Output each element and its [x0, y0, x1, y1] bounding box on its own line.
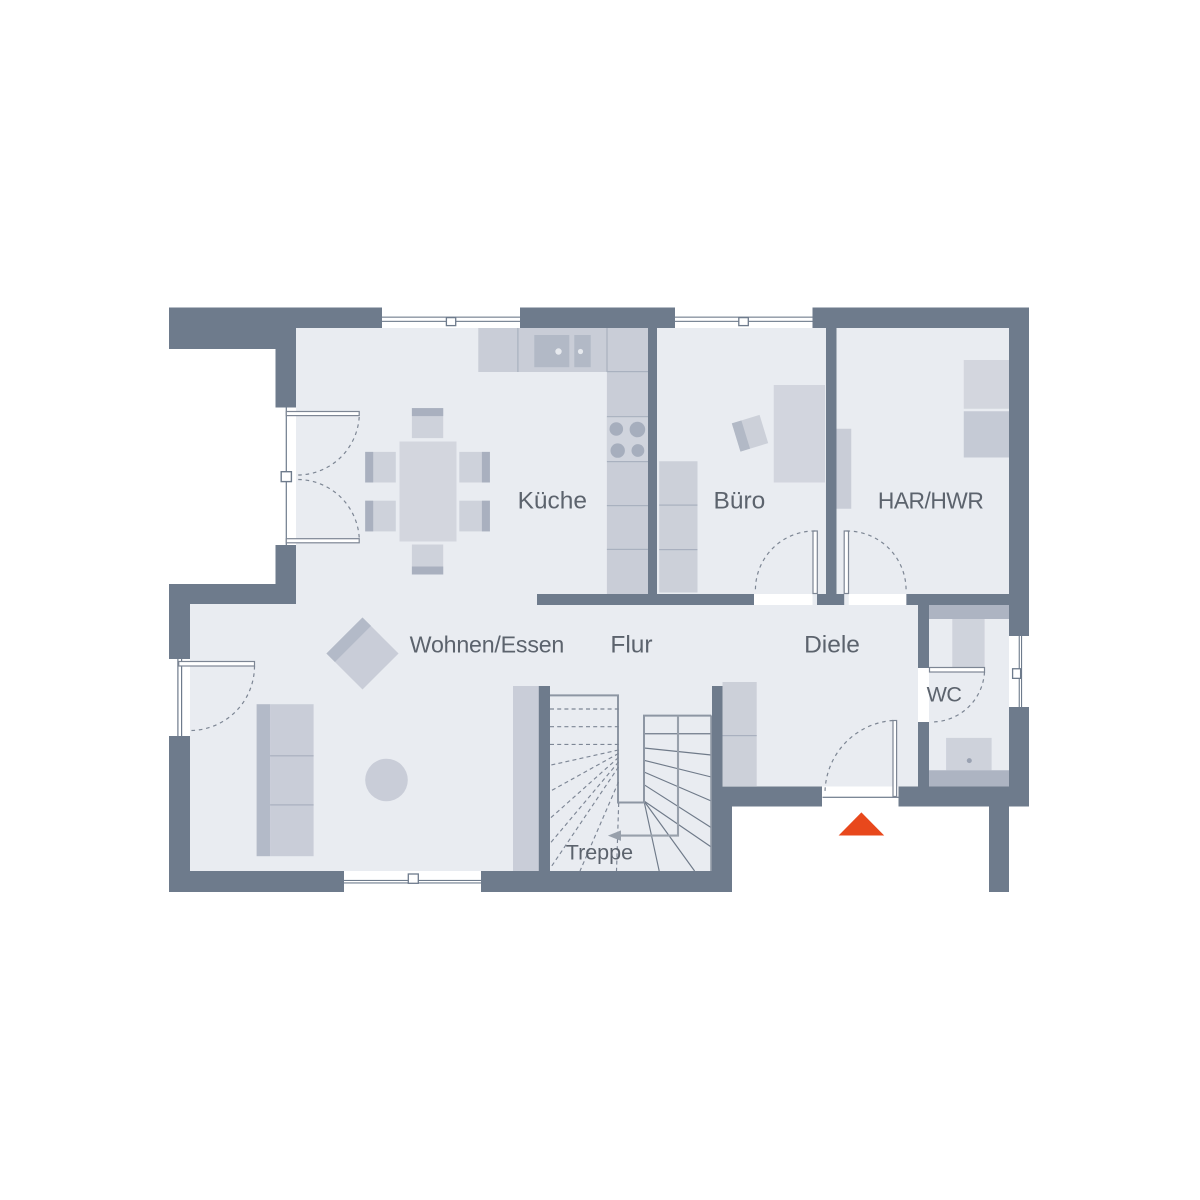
svg-text:Diele: Diele [804, 632, 860, 659]
svg-text:HAR/HWR: HAR/HWR [878, 488, 983, 514]
svg-text:Flur: Flur [610, 632, 652, 659]
svg-text:Küche: Küche [518, 488, 587, 515]
svg-text:Wohnen/Essen: Wohnen/Essen [410, 632, 564, 658]
svg-text:Treppe: Treppe [566, 841, 633, 865]
svg-text:Büro: Büro [714, 487, 766, 514]
svg-text:WC: WC [927, 683, 962, 707]
